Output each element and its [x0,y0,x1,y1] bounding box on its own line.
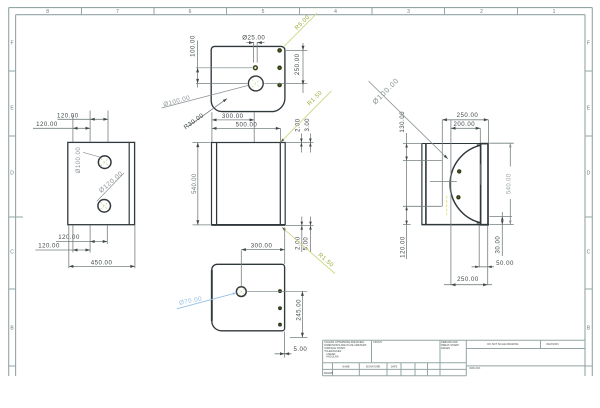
svg-text:UNLESS OTHERWISE SPECIFIED:: UNLESS OTHERWISE SPECIFIED: [324,341,365,344]
svg-text:C: C [587,250,591,256]
svg-text:2.00: 2.00 [295,118,301,132]
svg-text:500.00: 500.00 [236,121,258,128]
svg-text:DRAWN: DRAWN [324,372,334,375]
svg-text:LINEAR:: LINEAR: [324,353,336,356]
svg-text:D: D [587,171,591,177]
svg-text:250.00: 250.00 [457,276,479,283]
svg-text:ANGULAR:: ANGULAR: [324,356,339,359]
svg-text:200.00: 200.00 [453,121,475,128]
svg-text:100.00: 100.00 [190,35,197,57]
svg-text:SIGNATURE: SIGNATURE [366,366,381,369]
svg-text:FINISH:: FINISH: [373,341,382,344]
svg-text:6: 6 [189,9,192,15]
svg-text:BREAK SHARP: BREAK SHARP [441,344,459,347]
svg-text:REVISION: REVISION [547,343,559,346]
svg-text:50.00: 50.00 [496,260,514,267]
svg-text:TOLERANCES:: TOLERANCES: [324,350,342,353]
svg-text:D: D [10,171,14,177]
svg-text:120.00: 120.00 [36,121,58,128]
svg-text:Ø100.00: Ø100.00 [76,147,82,174]
svg-text:30.00: 30.00 [495,236,502,254]
svg-text:2: 2 [480,9,483,15]
svg-text:300.00: 300.00 [251,243,273,250]
svg-text:450.00: 450.00 [91,259,113,266]
svg-text:3.00: 3.00 [305,118,311,132]
svg-text:3: 3 [407,9,410,15]
svg-text:8: 8 [46,9,49,15]
svg-text:250.00: 250.00 [294,53,301,75]
svg-text:120.00: 120.00 [57,113,79,120]
svg-text:DEBURR AND: DEBURR AND [441,341,458,344]
svg-text:245.00: 245.00 [295,299,302,321]
svg-text:120.00: 120.00 [400,236,407,258]
svg-text:F: F [10,41,13,47]
svg-text:1: 1 [553,9,556,15]
svg-text:SURFACE FINISH:: SURFACE FINISH: [324,347,346,350]
svg-text:5: 5 [262,9,265,15]
svg-text:300.00: 300.00 [222,113,244,120]
svg-text:120.00: 120.00 [38,242,60,249]
svg-text:4: 4 [334,9,337,15]
svg-text:F: F [587,41,590,47]
svg-text:250.00: 250.00 [457,112,479,119]
svg-text:DIMENSIONS ARE IN MILLIMETERS: DIMENSIONS ARE IN MILLIMETERS [324,344,366,347]
svg-text:DATE: DATE [391,366,398,369]
svg-text:DO NOT SCALE DRAWING: DO NOT SCALE DRAWING [487,343,518,346]
svg-text:C: C [10,250,14,256]
svg-text:Ø25.00: Ø25.00 [242,35,265,42]
svg-text:540.00: 540.00 [506,173,512,194]
svg-text:DWG NO.: DWG NO. [470,367,482,370]
svg-text:NAME: NAME [342,366,350,369]
svg-text:5.00: 5.00 [293,346,307,353]
svg-text:7: 7 [116,9,119,15]
svg-text:EDGES: EDGES [441,347,450,350]
svg-text:540.00: 540.00 [192,173,198,194]
